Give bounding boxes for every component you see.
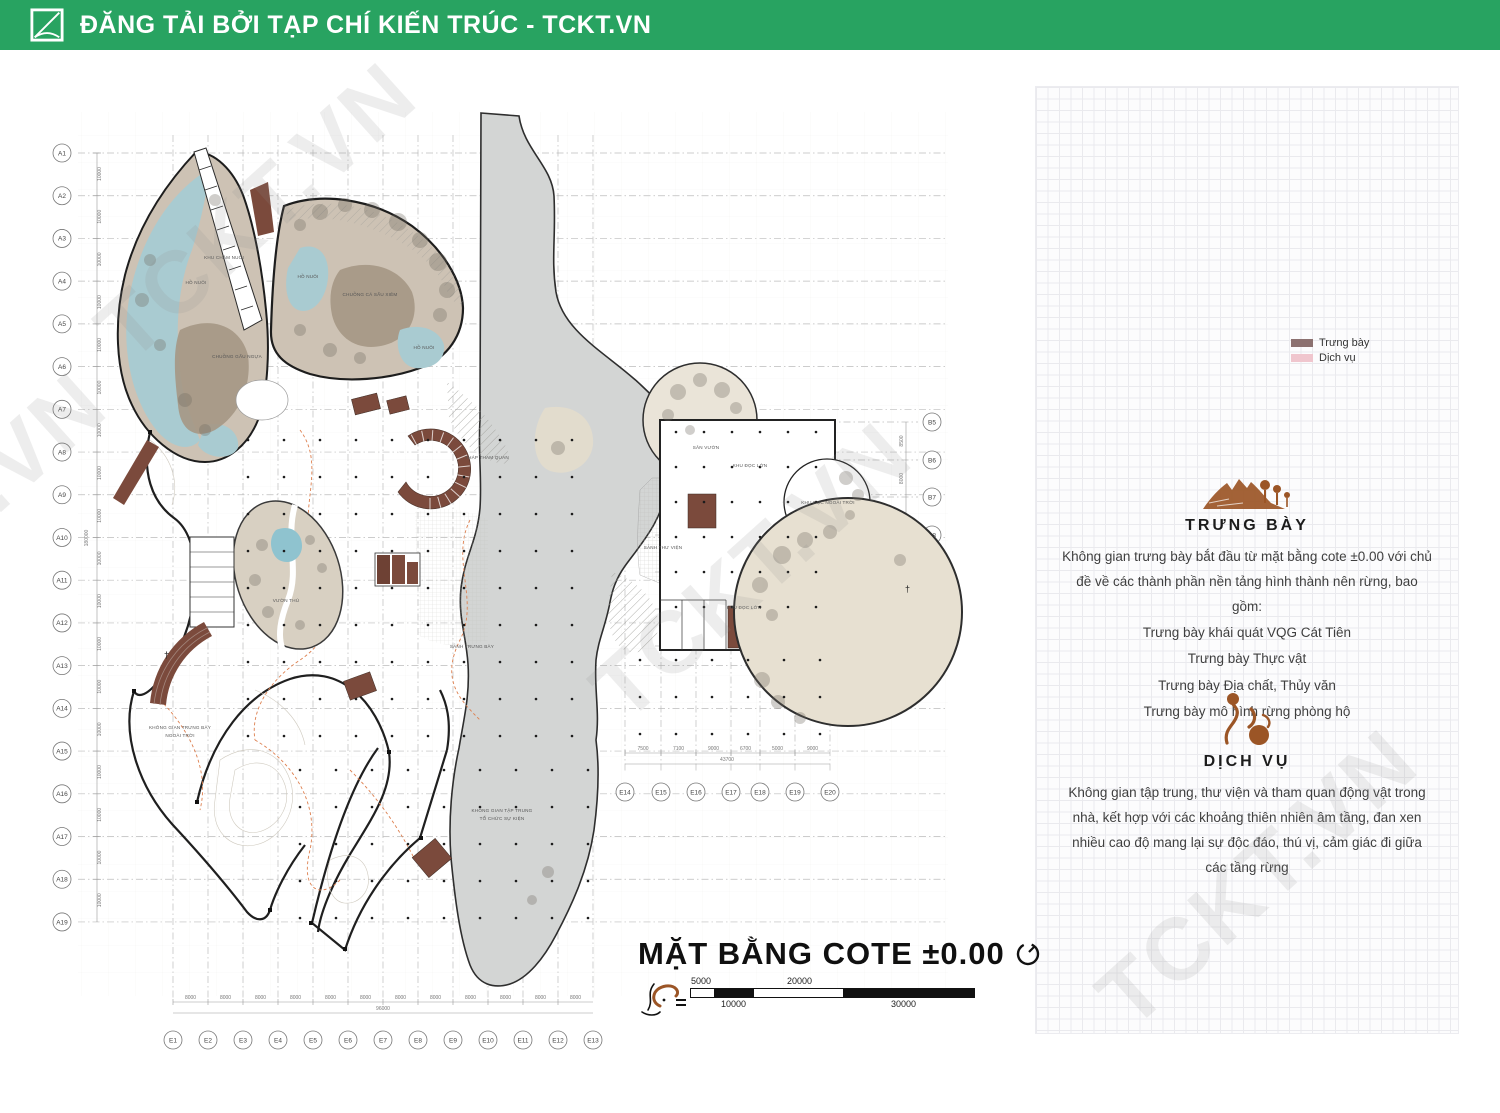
svg-text:SẢNH THƯ VIỆN: SẢNH THƯ VIỆN	[644, 543, 683, 550]
svg-text:E13: E13	[587, 1037, 599, 1044]
svg-text:SÂN VƯỜN: SÂN VƯỜN	[693, 444, 720, 450]
svg-text:KHU ĐỌC LỚN: KHU ĐỌC LỚN	[727, 604, 761, 610]
svg-text:10000: 10000	[97, 551, 103, 565]
svg-text:VƯỜN THÚ: VƯỜN THÚ	[273, 597, 299, 603]
room-block-left	[190, 537, 234, 627]
svg-text:KHU ĐỌC NGOÀI TRỜI: KHU ĐỌC NGOÀI TRỜI	[801, 499, 854, 505]
svg-text:10000: 10000	[97, 167, 103, 181]
svg-text:8000: 8000	[430, 995, 441, 1001]
svg-text:7500: 7500	[637, 746, 648, 752]
svg-text:8000: 8000	[290, 995, 301, 1001]
toilet-block	[375, 553, 420, 586]
svg-text:HỒ NUÔI: HỒ NUÔI	[185, 279, 206, 285]
scale-label: 10000	[721, 999, 746, 1009]
scale-label: 20000	[787, 976, 812, 986]
svg-text:10000: 10000	[97, 466, 103, 480]
svg-text:E7: E7	[379, 1037, 387, 1044]
svg-text:E3: E3	[239, 1037, 247, 1044]
svg-text:E6: E6	[344, 1037, 352, 1044]
svg-text:A2: A2	[58, 193, 66, 200]
svg-text:E20: E20	[824, 789, 836, 796]
gibbon-icon	[1036, 707, 1458, 749]
svg-text:10000: 10000	[97, 679, 103, 693]
exhibit-swatch	[1291, 339, 1313, 347]
svg-text:10000: 10000	[97, 338, 103, 352]
svg-text:A6: A6	[58, 364, 66, 371]
page: A1A2A3A4A5A6A7A8A9A10A11A12A13A14A15A16A…	[0, 0, 1500, 1113]
svg-text:10000: 10000	[97, 423, 103, 437]
svg-text:9000: 9000	[807, 746, 818, 752]
svg-text:8000: 8000	[255, 995, 266, 1001]
svg-text:10000: 10000	[97, 594, 103, 608]
svg-text:A14: A14	[56, 706, 68, 713]
svg-text:A18: A18	[56, 877, 68, 884]
care-area	[236, 380, 288, 420]
info-card: TCKT.VN Trưng bày Dịch vụ TR	[1035, 86, 1459, 1034]
svg-text:8500: 8500	[899, 435, 905, 446]
svg-text:A5: A5	[58, 321, 66, 328]
plan-title: MẶT BẰNG COTE ±0.00	[638, 936, 1005, 972]
mountain-forest-icon	[1036, 471, 1458, 513]
svg-text:8000: 8000	[570, 995, 581, 1001]
svg-text:E14: E14	[619, 789, 631, 796]
svg-text:10000: 10000	[97, 509, 103, 523]
key-plan-legend: Trưng bày Dịch vụ	[1291, 337, 1369, 367]
scale-label: 30000	[891, 999, 916, 1009]
svg-text:10000: 10000	[97, 808, 103, 822]
svg-text:E8: E8	[414, 1037, 422, 1044]
svg-text:96000: 96000	[376, 1006, 390, 1012]
svg-text:8000: 8000	[899, 473, 905, 484]
svg-text:A11: A11	[56, 578, 67, 585]
section-body: Không gian tập trung, thư viện và tham q…	[1036, 781, 1458, 881]
svg-text:A16: A16	[56, 791, 68, 798]
svg-text:7100: 7100	[673, 746, 684, 752]
north-cross-icon: †	[164, 650, 169, 660]
svg-text:6700: 6700	[740, 746, 751, 752]
section-service: DỊCH VỤ Không gian tập trung, thư viện v…	[1036, 707, 1458, 881]
list-item: Trưng bày Thực vật	[1036, 646, 1458, 672]
list-item: Trưng bày khái quát VQG Cát Tiên	[1036, 620, 1458, 646]
compass-icon	[1015, 941, 1041, 967]
svg-text:CHUỒNG CÁ SẤU XIÊM: CHUỒNG CÁ SẤU XIÊM	[343, 290, 398, 297]
svg-text:A3: A3	[58, 236, 66, 243]
svg-text:8000: 8000	[535, 995, 546, 1001]
svg-text:8000: 8000	[220, 995, 231, 1001]
svg-text:10000: 10000	[97, 850, 103, 864]
svg-text:E4: E4	[274, 1037, 282, 1044]
svg-text:E16: E16	[690, 789, 702, 796]
svg-text:10000: 10000	[97, 722, 103, 736]
svg-text:E1: E1	[169, 1037, 177, 1044]
svg-text:A8: A8	[58, 449, 66, 456]
svg-text:A13: A13	[56, 663, 68, 670]
svg-text:5000: 5000	[772, 746, 783, 752]
svg-text:TỔ CHỨC SỰ KIỆN: TỔ CHỨC SỰ KIỆN	[480, 814, 525, 821]
legend-item-exhibit: Trưng bày	[1291, 337, 1369, 349]
svg-text:8000: 8000	[500, 995, 511, 1001]
svg-text:A19: A19	[56, 919, 68, 926]
svg-text:8000: 8000	[185, 995, 196, 1001]
svg-text:E2: E2	[204, 1037, 212, 1044]
svg-text:A17: A17	[56, 834, 68, 841]
tckt-logo	[30, 8, 64, 42]
header-title: ĐĂNG TẢI BỞI TẠP CHÍ KIẾN TRÚC - TCKT.VN	[80, 11, 651, 40]
svg-text:CHUỒNG GẤU NGỰA: CHUỒNG GẤU NGỰA	[212, 353, 263, 359]
svg-text:43700: 43700	[720, 757, 734, 763]
svg-text:E17: E17	[725, 789, 737, 796]
svg-text:E9: E9	[449, 1037, 457, 1044]
svg-text:10000: 10000	[97, 380, 103, 394]
svg-text:E19: E19	[789, 789, 801, 796]
svg-text:KHU ĐỌC LỚN: KHU ĐỌC LỚN	[733, 462, 767, 468]
svg-text:10000: 10000	[97, 252, 103, 266]
svg-text:SẢNH TRƯNG BÀY: SẢNH TRƯNG BÀY	[450, 643, 494, 649]
svg-text:180000: 180000	[84, 529, 90, 546]
scale-bar: 5000 20000 10000 30000	[690, 988, 975, 998]
svg-text:KHÔNG GIAN TẬP TRUNG: KHÔNG GIAN TẬP TRUNG	[472, 807, 533, 813]
svg-text:A9: A9	[58, 492, 66, 499]
plan-title-block: MẶT BẰNG COTE ±0.00	[638, 936, 1041, 972]
svg-text:THÁP THAM QUAN: THÁP THAM QUAN	[465, 454, 509, 460]
svg-text:HỒ NUÔI: HỒ NUÔI	[413, 344, 434, 350]
svg-text:10000: 10000	[97, 637, 103, 651]
svg-text:HỒ NUÔI: HỒ NUÔI	[297, 273, 318, 279]
svg-text:E15: E15	[655, 789, 667, 796]
section-body: Không gian trưng bày bắt đầu từ mặt bằng…	[1036, 545, 1458, 620]
svg-text:KHÔNG GIAN TRƯNG BÀY: KHÔNG GIAN TRƯNG BÀY	[149, 724, 211, 730]
oval-pond	[271, 528, 302, 562]
service-swatch	[1291, 354, 1313, 362]
svg-text:10000: 10000	[97, 210, 103, 224]
svg-text:8000: 8000	[360, 995, 371, 1001]
svg-text:8000: 8000	[395, 995, 406, 1001]
svg-text:A12: A12	[56, 620, 68, 627]
svg-text:B6: B6	[928, 457, 936, 464]
svg-text:E11: E11	[517, 1037, 528, 1044]
section-heading: DỊCH VỤ	[1036, 753, 1458, 771]
svg-text:A7: A7	[58, 407, 66, 414]
svg-text:E10: E10	[482, 1037, 494, 1044]
svg-text:NGOÀI TRỜI: NGOÀI TRỜI	[165, 732, 194, 738]
svg-text:E18: E18	[754, 789, 766, 796]
section-heading: TRƯNG BÀY	[1036, 517, 1458, 535]
header-bar: ĐĂNG TẢI BỞI TẠP CHÍ KIẾN TRÚC - TCKT.VN	[0, 0, 1500, 50]
svg-text:B5: B5	[928, 419, 936, 426]
svg-text:A4: A4	[58, 278, 66, 285]
north-cross-icon: †	[905, 584, 910, 594]
north-arrow-icon	[636, 976, 686, 1018]
legend-item-service: Dịch vụ	[1291, 352, 1369, 364]
exhibit-lobby-tiles	[415, 509, 488, 646]
legend-label: Dịch vụ	[1319, 352, 1356, 364]
svg-text:8000: 8000	[465, 995, 476, 1001]
scale-label: 5000	[691, 976, 711, 986]
svg-text:A10: A10	[56, 535, 68, 542]
svg-text:10000: 10000	[97, 765, 103, 779]
legend-label: Trưng bày	[1319, 337, 1369, 349]
section-exhibit: TRƯNG BÀY Không gian trưng bày bắt đầu t…	[1036, 471, 1458, 725]
svg-text:KHU CHĂM NUÔI: KHU CHĂM NUÔI	[204, 254, 244, 260]
svg-text:9000: 9000	[708, 746, 719, 752]
svg-text:8000: 8000	[325, 995, 336, 1001]
svg-text:10000: 10000	[97, 295, 103, 309]
svg-text:E12: E12	[552, 1037, 564, 1044]
svg-text:A1: A1	[58, 150, 66, 157]
svg-text:10000: 10000	[97, 893, 103, 907]
svg-text:E5: E5	[309, 1037, 317, 1044]
svg-text:A15: A15	[56, 748, 68, 755]
svg-text:B7: B7	[928, 494, 936, 501]
